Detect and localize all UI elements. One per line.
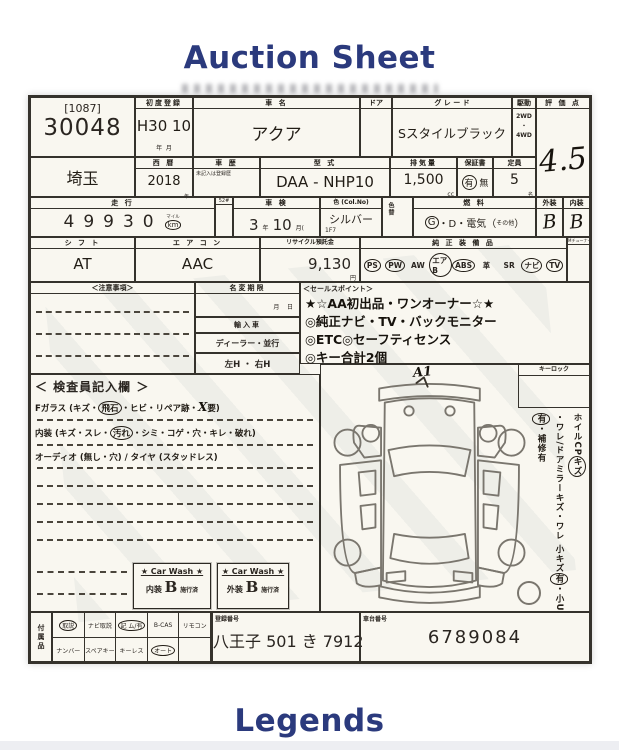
first-registration-label: 初度登録 [136, 98, 192, 109]
chassis-cell: 車台番号 6789084 [360, 612, 590, 662]
segment: ホイルCP [572, 413, 582, 456]
rating-label: 評 価 点 [537, 98, 589, 109]
shaken-year-unit: 年 [263, 223, 269, 232]
aircon-label: エ ア コ ン [136, 238, 259, 249]
exterior-grade: B [536, 208, 563, 236]
lot-cell: [1087] 30048 [30, 97, 135, 157]
notes-cell: ＜注意事項＞ [30, 282, 195, 374]
segment: 無 [477, 176, 489, 189]
car-diagram-panel: キーロック A1 [320, 364, 590, 612]
sales-point-line: ★☆AA初出品・ワンオーナー☆★ [305, 295, 585, 313]
import-box: 輸入車 [195, 317, 300, 333]
rating-value: 4.5 [536, 141, 591, 180]
name-change-stack: 名変期限 月 日 輸入車 ディーラー・並行 左H ・ 右H [195, 282, 300, 374]
inspector-cell: ＜ 検査員記入欄 ＞ Fガラス (キズ・飛石・ヒビ・リペア跡・X要) 内装 (キ… [30, 374, 320, 612]
sales-point-line: ◎純正ナビ・TV・バックモニター [305, 313, 585, 331]
segment: オーディオ (無し・穴) / タイヤ (スタッドレス) [35, 453, 218, 463]
handle-label: 左H ・ 右H [196, 358, 299, 370]
car-diagram-svg [327, 375, 532, 609]
capacity-value: 5 [494, 169, 535, 191]
inspector-dash [37, 467, 313, 469]
color-cell: 色 (Col.No) シルバー 1F7 [320, 197, 382, 237]
sales-points-lines: ★☆AA初出品・ワンオーナー☆★◎純正ナビ・TV・バックモニター◎ETC◎セーフ… [301, 295, 589, 368]
accessory-item: 記 ム/有 [116, 613, 148, 638]
segment: 有 [532, 413, 550, 425]
segment: 飛石 [98, 401, 121, 415]
accessory-item: キーレス [116, 638, 148, 663]
mtuner-label: Mチューナー [568, 238, 589, 245]
notes-dash [36, 333, 189, 335]
accessories-label: 付属品 [36, 624, 46, 651]
accessory-item: B-CAS [148, 613, 180, 638]
segment: 要) [207, 404, 219, 414]
segment: 有 [550, 573, 568, 585]
fuel-label: 燃 料 [414, 198, 535, 209]
recycle-fee-cell: リサイクル預託金 9,130 円 [260, 237, 360, 282]
equipment-item: SR [498, 261, 521, 270]
page-title: Auction Sheet [0, 40, 619, 76]
inspector-dash [37, 444, 313, 446]
chassis-value: 6789084 [361, 627, 589, 648]
registration-label: 登録番号 [213, 613, 359, 624]
year-value: 2018 [136, 169, 192, 193]
inspector-line-audio: オーディオ (無し・穴) / タイヤ (スタッドレス) [35, 451, 315, 463]
segment: 内装 (キズ・スレ・ [35, 429, 110, 439]
segment: Fガラス (キズ・ [35, 404, 98, 414]
shift-value: AT [31, 249, 134, 279]
history-note: 未記入は登録歴 [194, 169, 259, 178]
equipment-item: AW [407, 261, 430, 270]
recycle-fee-unit: 円 [261, 273, 359, 282]
mileage-value: 49930 [64, 212, 163, 232]
dealer-parallel-box: ディーラー・並行 [195, 333, 300, 353]
carwash-exterior-box: ★ Car Wash ★ 外装 B 施行済 [217, 563, 289, 609]
displacement-cell: 排気量 1,500 cc [390, 157, 457, 197]
dealer-parallel-label: ディーラー・並行 [196, 338, 299, 349]
accessory-item: ナンバー [53, 638, 85, 663]
legends-title: Legends [0, 703, 619, 739]
equipment-label: 純 正 装 備 品 [361, 238, 566, 249]
inspector-dash [37, 419, 313, 421]
carwash-interior-box: ★ Car Wash ★ 内装 B 施行済 [133, 563, 211, 609]
handle-box: 左H ・ 右H [195, 353, 300, 374]
color-change-label: 色替 [386, 202, 395, 216]
accessory-item: オート [148, 638, 180, 663]
shaken-month-unit: 月( [296, 223, 304, 232]
grade-cell: グ レ ー ド Sスタイルブラック [392, 97, 512, 157]
drive-label: 駆動 [513, 98, 535, 109]
registration-value: 八王子 501 き 7912 [213, 628, 359, 652]
sales-point-line: ◎ETC◎セーフティセンス [305, 331, 585, 349]
equipment-item: TV [543, 259, 566, 272]
drive-option: 4WD [513, 131, 535, 141]
sales-points-cell: ＜セールスポイント＞ ★☆AA初出品・ワンオーナー☆★◎純正ナビ・TV・バックモ… [300, 282, 590, 364]
registration-cell: 登録番号 八王子 501 き 7912 [212, 612, 360, 662]
notes-dash [36, 311, 189, 313]
fuel-cell: 燃 料 G・D・電気（その他） [413, 197, 536, 237]
carwash-header: ★ Car Wash ★ [134, 567, 210, 576]
shaken-cell: 車 検 3 年 10 月( [233, 197, 320, 237]
mileage-unit: km [165, 220, 182, 230]
accessory-item: スペアキー [85, 638, 117, 663]
aircon-value: AAC [136, 249, 259, 279]
notes-dash [36, 355, 189, 357]
mileage-cell: 走 行 49930 マイル km [30, 197, 215, 237]
carwash-exterior-value: 外装 B 施行済 [218, 578, 288, 596]
mileage-side-cell: 52# [215, 197, 233, 237]
accessories-row-1: 取説ナビ取説記 ム/有B-CASリモコン [53, 613, 211, 638]
chassis-label: 車台番号 [361, 613, 589, 624]
carwash-interior-value: 内装 B 施行済 [134, 578, 210, 596]
inspector-dash [37, 539, 313, 541]
recycle-fee-value: 9,130 [261, 255, 359, 273]
shaken-label: 車 検 [234, 198, 319, 209]
first-registration-value: H30 10 [136, 109, 192, 143]
drive-option: 2WD [513, 112, 535, 122]
segment: ・D・電気（ [439, 215, 497, 230]
drive-option: ・ [513, 122, 535, 132]
inspector-label: ＜ 検査員記入欄 ＞ [31, 375, 319, 395]
drive-options: 2WD・4WD [513, 112, 535, 141]
capacity-cell: 定員 5 名 [493, 157, 536, 197]
name-change-deadline-box: 名変期限 月 日 [195, 282, 300, 317]
year-cell: 西 暦 2018 年 [135, 157, 193, 197]
color-value: シルバー [321, 211, 381, 227]
model-code-label: 型 式 [261, 158, 389, 169]
car-name-value: アクア [194, 109, 359, 155]
model-code-value: DAA - NHP10 [261, 169, 389, 195]
name-change-deadline-label: 名変期限 [196, 283, 299, 294]
inspector-dash [37, 571, 127, 573]
equipment-item: PW [384, 259, 407, 272]
accessory-item: リモコン [179, 613, 211, 638]
lot-bracket: [1087] [31, 102, 134, 115]
drive-cell: 駆動 2WD・4WD [512, 97, 536, 157]
mileage-side-label: 52# [216, 198, 232, 205]
model-code-cell: 型 式 DAA - NHP10 [260, 157, 390, 197]
equipment-item: ナビ [521, 258, 544, 273]
segment: X [198, 400, 207, 414]
equipment-item: エアB [429, 253, 452, 277]
exterior-cell: 外装 B [536, 197, 563, 237]
car-name-label: 車 名 [194, 98, 359, 109]
grade-value: Sスタイルブラック [393, 109, 511, 155]
shaken-month: 10 [273, 216, 292, 234]
warranty-value: 有 無 [458, 169, 492, 195]
prefecture-cell: 埼玉 [30, 157, 135, 197]
segment: G [425, 216, 439, 229]
segment: ・ワレ/ドアミラーキズ・ワレ [554, 413, 564, 545]
inspector-line-fglass: Fガラス (キズ・飛石・ヒビ・リペア跡・X要) [35, 400, 315, 415]
accessory-item [179, 638, 211, 663]
grade-label: グ レ ー ド [393, 98, 511, 109]
accessories-grid: 取説ナビ取説記 ム/有B-CASリモコン ナンバースペアキーキーレスオート [52, 612, 212, 662]
import-label: 輸入車 [196, 320, 299, 330]
interior-grade: B [563, 208, 590, 236]
color-label: 色 (Col.No) [321, 198, 381, 209]
inspector-line-interior: 内装 (キズ・スレ・汚れ・シミ・コゲ・穴・キレ・破れ) [35, 426, 315, 440]
rating-cell: 評 価 点 4.5 [536, 97, 590, 197]
interior-cell: 内装 B [563, 197, 590, 237]
segment: 汚れ [110, 426, 133, 440]
equipment-items: PSPWAWエアBABS革SRナビTV [361, 249, 566, 281]
lot-number: 30048 [31, 115, 134, 141]
accessory-item: 取説 [53, 613, 85, 638]
equipment-cell: 純 正 装 備 品 PSPWAWエアBABS革SRナビTV [360, 237, 567, 282]
sales-points-label: ＜セールスポイント＞ [301, 283, 589, 295]
auction-sheet: [1087] 30048 初度登録 H30 10 年 月 車 名 アクア ドア … [28, 95, 592, 664]
accessory-item: ナビ取説 [85, 613, 117, 638]
first-registration-units: 年 月 [136, 143, 192, 152]
door-cell: ドア [360, 97, 392, 157]
displacement-value: 1,500 [391, 169, 456, 191]
inspector-dash [37, 593, 127, 595]
segment: ・小U [554, 585, 564, 612]
door-label: ドア [361, 98, 391, 109]
capacity-label: 定員 [494, 158, 535, 169]
bottom-strip [0, 741, 619, 750]
displacement-label: 排気量 [391, 158, 456, 169]
equipment-item: PS [361, 259, 384, 272]
accessories-label-cell: 付属品 [30, 612, 52, 662]
segment: ・ヒビ・リペア跡・ [122, 404, 199, 414]
notes-label: ＜注意事項＞ [31, 283, 194, 294]
shift-cell: シ フ ト AT [30, 237, 135, 282]
segment: 小キズ [554, 545, 564, 574]
aircon-cell: エ ア コ ン AAC [135, 237, 260, 282]
segment: 有 [462, 175, 477, 190]
name-change-date: 月 日 [196, 294, 299, 311]
car-name-cell: 車 名 アクア [193, 97, 360, 157]
segment: ・シミ・コゲ・穴・キレ・破れ) [133, 429, 256, 439]
inspector-dash [37, 521, 313, 523]
carwash-header: ★ Car Wash ★ [218, 567, 288, 576]
segment: ） [514, 215, 524, 230]
inspector-dash [37, 485, 313, 487]
color-code: 1F7 [321, 227, 381, 234]
accessories-row-2: ナンバースペアキーキーレスオート [53, 638, 211, 663]
mtuner-cell: Mチューナー [567, 237, 590, 282]
color-change-cell: 色替 [382, 197, 413, 237]
mileage-label: 走 行 [31, 198, 214, 209]
year-label: 西 暦 [136, 158, 192, 169]
faded-scan-text [182, 84, 438, 93]
equipment-item: ABS [452, 259, 475, 272]
warranty-cell: 保証書 有 無 [457, 157, 493, 197]
history-cell: 車 歴 未記入は登録歴 [193, 157, 260, 197]
segment: その他 [496, 218, 514, 227]
page: { "page": {"title": "Auction Sheet", "fo… [0, 0, 619, 750]
shaken-year: 3 [249, 216, 259, 234]
shift-label: シ フ ト [31, 238, 134, 249]
first-registration-cell: 初度登録 H30 10 年 月 [135, 97, 193, 157]
warranty-label: 保証書 [458, 158, 492, 169]
equipment-item: 革 [475, 260, 498, 271]
segment: キズ [568, 456, 586, 477]
inspector-dash [37, 503, 313, 505]
segment: ・補修有 [536, 425, 546, 463]
wheel-damage-vertical-note: ホイルCPキズ・ワレ/ドアミラーキズ・ワレ 小キズ有・小U有・補修有 [532, 413, 586, 618]
recycle-fee-label: リサイクル預託金 [261, 238, 359, 249]
fuel-value: G・D・電気（その他） [414, 209, 535, 235]
history-label: 車 歴 [194, 158, 259, 169]
